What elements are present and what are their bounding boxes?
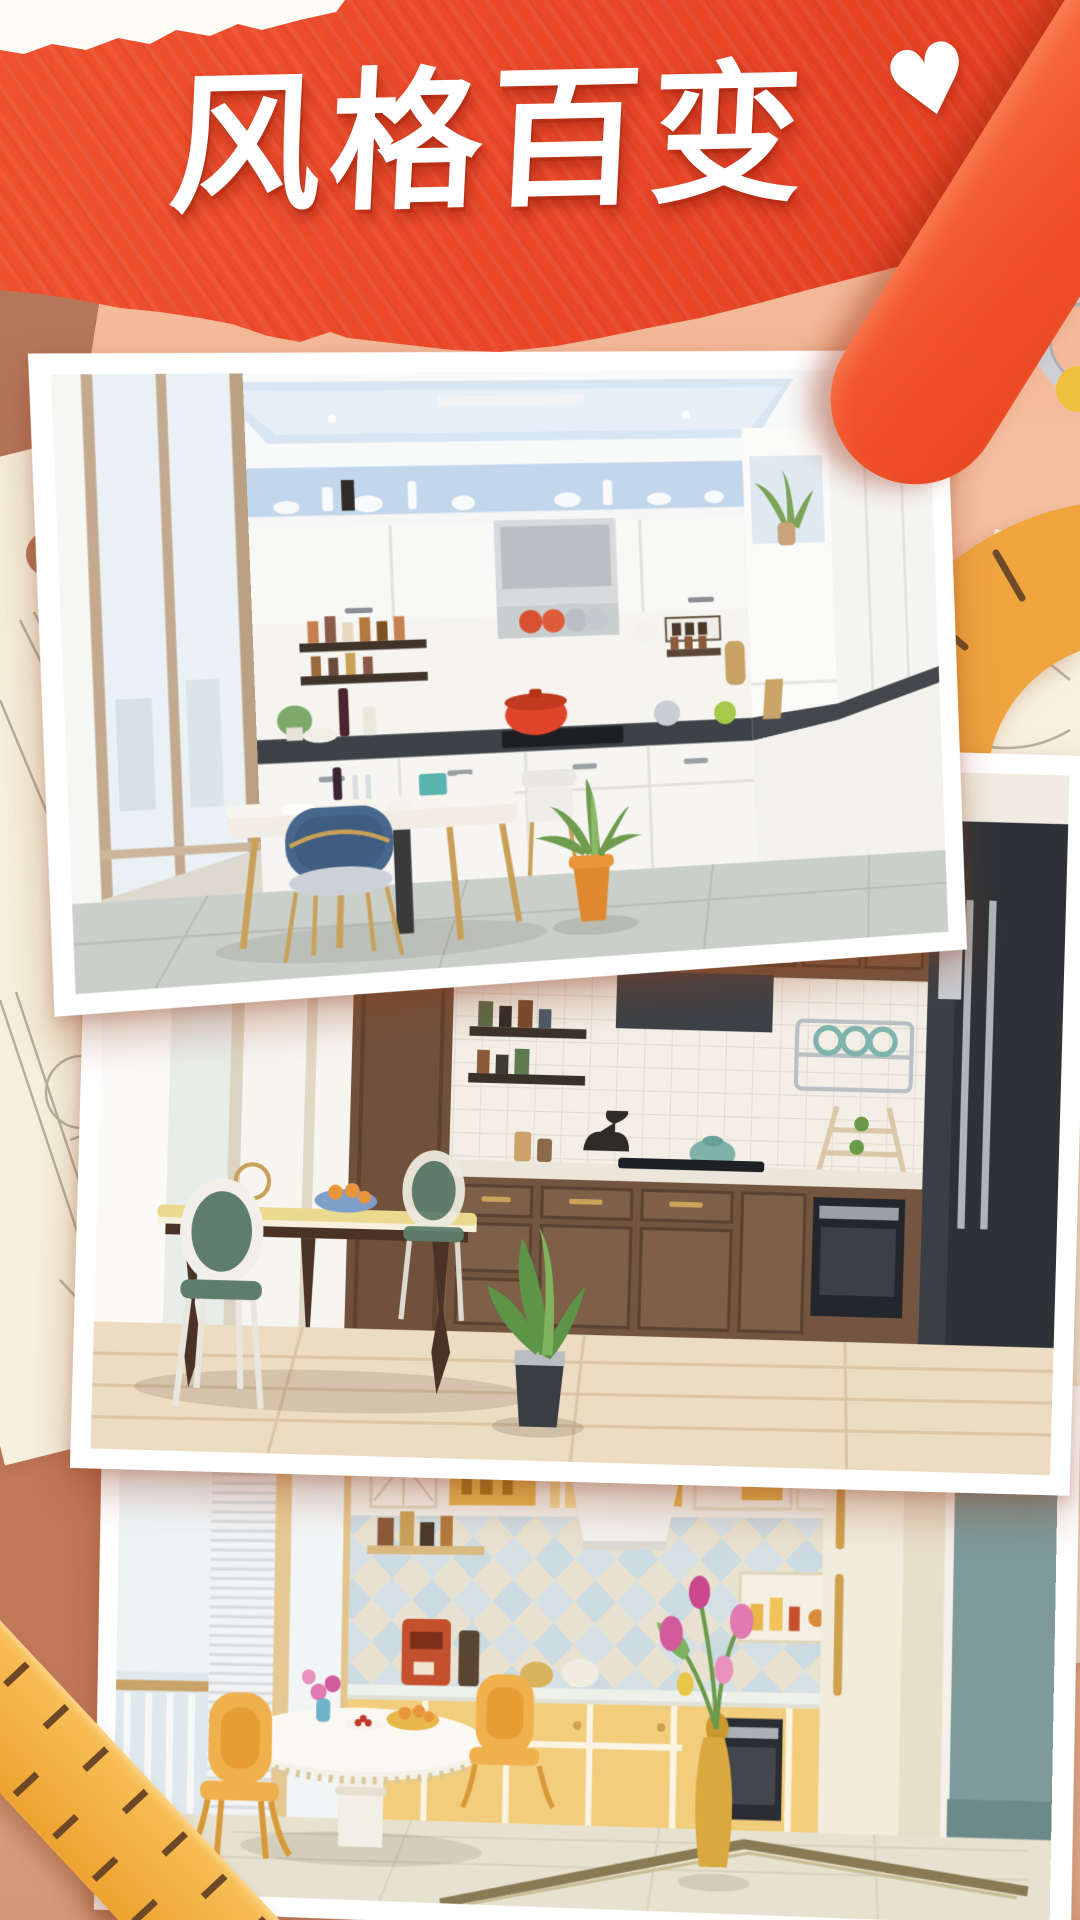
promo-screenshot: 风格百变 ♥	[0, 0, 1080, 1920]
kitchen-photo-modern-white	[28, 350, 967, 1016]
banner-title: 风格百变	[166, 53, 875, 227]
